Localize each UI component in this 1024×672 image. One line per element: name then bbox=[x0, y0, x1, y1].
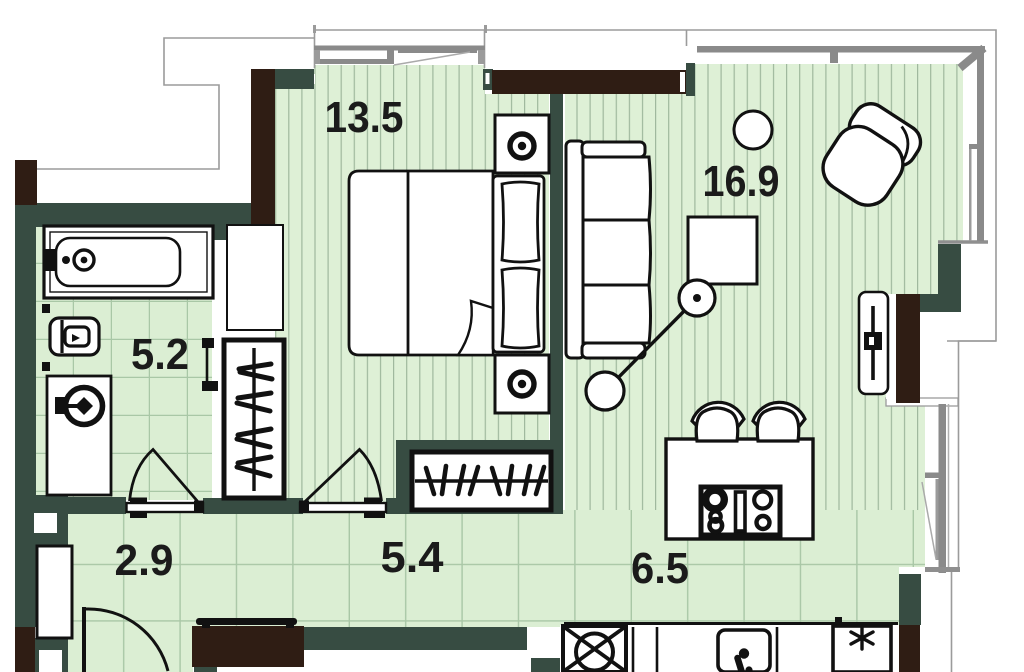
svg-text:2.9: 2.9 bbox=[115, 536, 174, 585]
svg-text:5.2: 5.2 bbox=[131, 330, 189, 379]
svg-text:13.5: 13.5 bbox=[325, 93, 404, 142]
svg-text:6.5: 6.5 bbox=[631, 544, 689, 593]
svg-text:16.9: 16.9 bbox=[703, 157, 780, 206]
svg-text:5.4: 5.4 bbox=[381, 533, 445, 582]
